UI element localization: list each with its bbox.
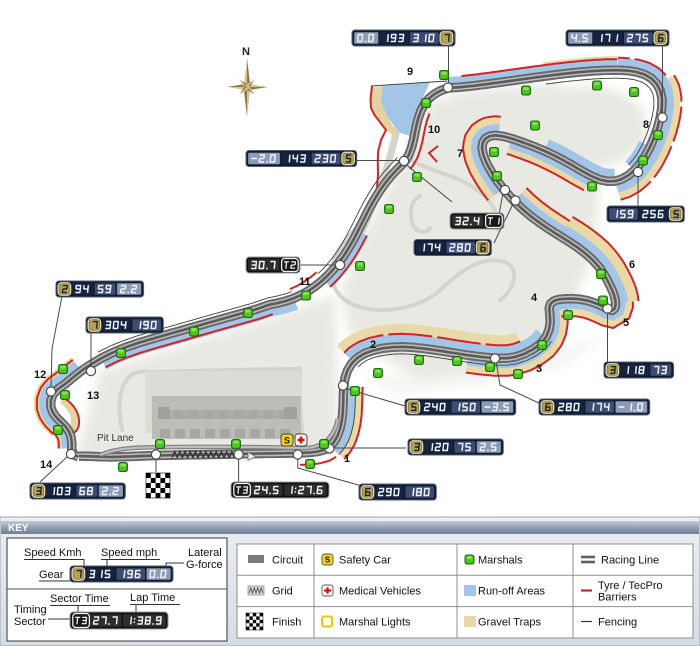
- svg-text:5: 5: [623, 317, 629, 329]
- svg-text:Lateral: Lateral: [188, 547, 222, 559]
- svg-text:Circuit: Circuit: [272, 555, 303, 567]
- svg-text:Fencing: Fencing: [598, 617, 637, 629]
- svg-text:G-force: G-force: [186, 559, 223, 571]
- svg-text:14: 14: [40, 459, 53, 471]
- svg-text:11: 11: [299, 276, 311, 288]
- svg-text:10: 10: [428, 124, 440, 136]
- svg-text:1: 1: [344, 453, 350, 465]
- svg-text:13: 13: [87, 390, 99, 402]
- svg-text:Medical Vehicles: Medical Vehicles: [339, 586, 421, 598]
- svg-text:Gravel Traps: Gravel Traps: [478, 617, 541, 629]
- svg-text:Gear: Gear: [39, 569, 64, 581]
- svg-text:4: 4: [531, 292, 538, 304]
- svg-text:7: 7: [457, 148, 463, 160]
- svg-text:Racing Line: Racing Line: [601, 555, 659, 567]
- svg-text:Marshals: Marshals: [478, 555, 523, 567]
- svg-text:Pit Lane: Pit Lane: [97, 433, 134, 444]
- svg-text:Run-off Areas: Run-off Areas: [478, 586, 546, 598]
- svg-text:3: 3: [536, 363, 542, 375]
- svg-text:N: N: [242, 46, 250, 58]
- svg-text:Speed Kmh: Speed Kmh: [24, 547, 81, 559]
- svg-text:12: 12: [34, 369, 46, 381]
- svg-text:S: S: [284, 436, 290, 446]
- svg-text:Marshal Lights: Marshal Lights: [339, 617, 411, 629]
- svg-text:6: 6: [629, 259, 635, 271]
- svg-text:Speed mph: Speed mph: [101, 547, 157, 559]
- svg-text:Lap Time: Lap Time: [130, 592, 175, 604]
- svg-text:Barriers: Barriers: [598, 592, 637, 604]
- svg-text:Sector Time: Sector Time: [50, 593, 109, 605]
- svg-text:Grid: Grid: [272, 586, 293, 598]
- svg-text:S: S: [325, 556, 331, 565]
- svg-text:Finish: Finish: [272, 617, 301, 629]
- svg-text:9: 9: [407, 66, 413, 78]
- svg-text:Timing: Timing: [14, 604, 47, 616]
- svg-text:Sector: Sector: [14, 616, 46, 628]
- svg-text:Safety Car: Safety Car: [339, 555, 391, 567]
- svg-text:2: 2: [370, 339, 376, 351]
- svg-text:8: 8: [643, 119, 649, 131]
- svg-text:Tyre / TecPro: Tyre / TecPro: [598, 580, 663, 592]
- svg-text:KEY: KEY: [8, 523, 29, 534]
